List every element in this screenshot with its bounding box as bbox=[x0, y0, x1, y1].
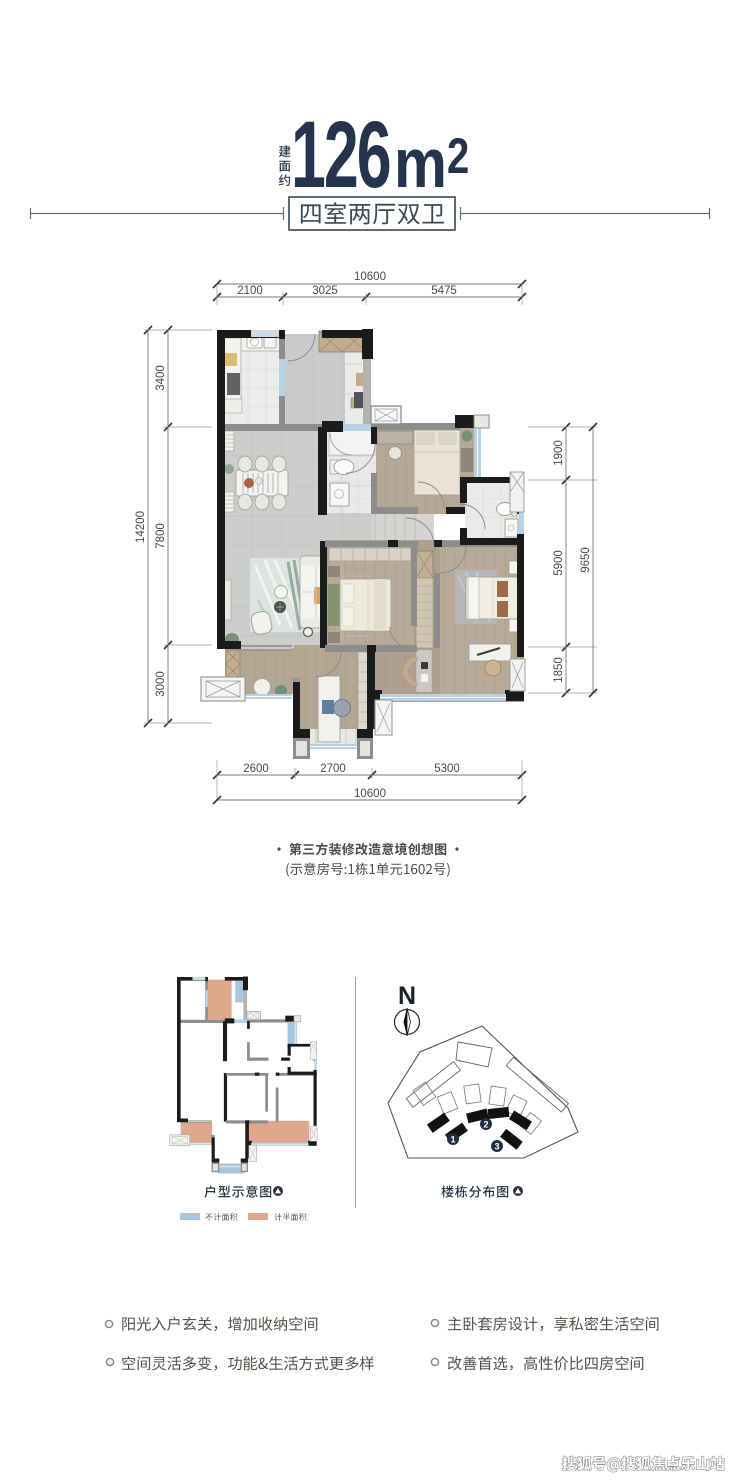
svg-text:1900: 1900 bbox=[553, 440, 565, 466]
svg-text:1850: 1850 bbox=[553, 657, 565, 683]
svg-text:3400: 3400 bbox=[155, 365, 167, 391]
svg-text:2600: 2600 bbox=[243, 763, 269, 775]
svg-text:5300: 5300 bbox=[434, 763, 460, 775]
svg-text:3000: 3000 bbox=[155, 671, 167, 697]
svg-text:9650: 9650 bbox=[580, 547, 592, 573]
svg-text:2: 2 bbox=[447, 128, 469, 184]
svg-text:126: 126 bbox=[291, 102, 390, 208]
svg-text:7800: 7800 bbox=[155, 523, 167, 549]
svg-text:2100: 2100 bbox=[237, 285, 263, 297]
svg-text:3: 3 bbox=[494, 1142, 499, 1152]
svg-text:1: 1 bbox=[450, 1135, 455, 1145]
svg-text:2700: 2700 bbox=[320, 763, 346, 775]
svg-text:m: m bbox=[394, 123, 447, 202]
svg-text:14200: 14200 bbox=[135, 511, 147, 543]
svg-text:5475: 5475 bbox=[431, 285, 457, 297]
svg-text:2: 2 bbox=[483, 1120, 488, 1130]
svg-text:10600: 10600 bbox=[354, 271, 386, 283]
svg-text:5900: 5900 bbox=[553, 550, 565, 576]
svg-text:10600: 10600 bbox=[354, 788, 386, 800]
svg-text:N: N bbox=[398, 982, 416, 1010]
svg-text:3025: 3025 bbox=[312, 285, 338, 297]
